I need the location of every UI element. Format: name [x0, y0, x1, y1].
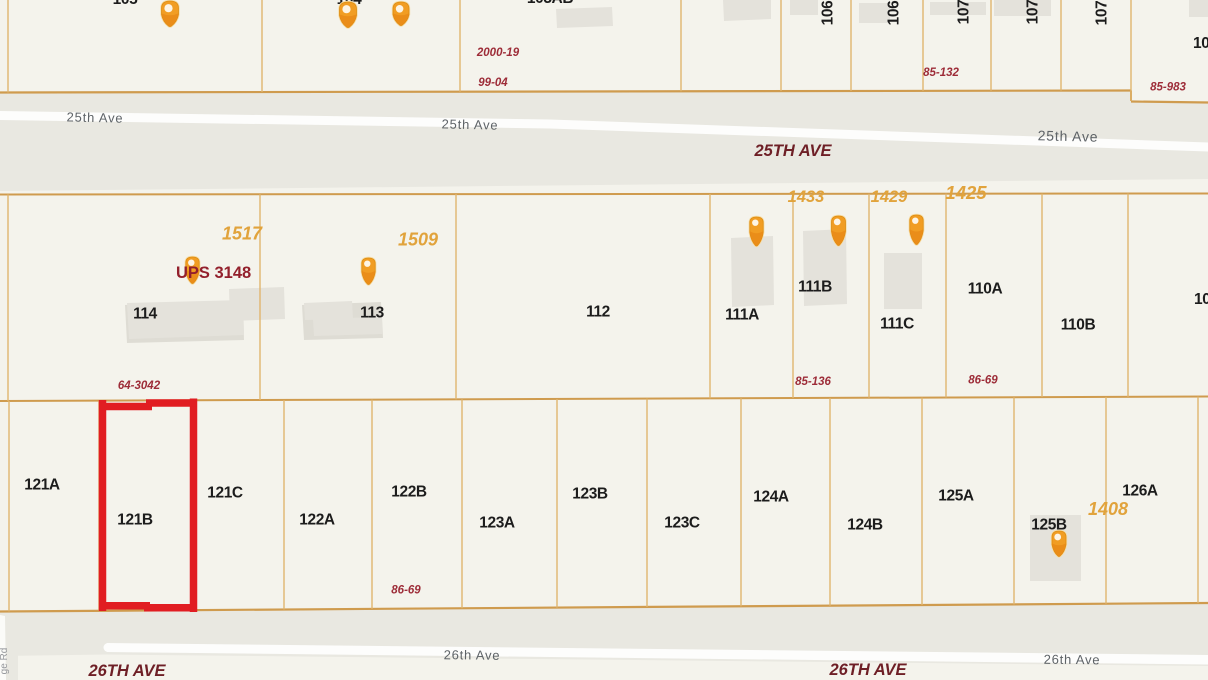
- svg-text:124B: 124B: [847, 517, 883, 534]
- svg-text:25th Ave: 25th Ave: [441, 116, 498, 132]
- svg-text:106: 106: [820, 0, 837, 25]
- svg-text:1509: 1509: [398, 230, 438, 250]
- svg-text:ge Rd: ge Rd: [0, 648, 10, 675]
- svg-text:85-132: 85-132: [923, 67, 959, 79]
- svg-text:1517: 1517: [222, 224, 263, 244]
- svg-text:26TH AVE: 26TH AVE: [828, 661, 907, 679]
- svg-text:UPS 3148: UPS 3148: [176, 264, 251, 282]
- svg-text:113: 113: [360, 305, 385, 322]
- svg-text:123C: 123C: [664, 515, 700, 532]
- svg-text:86-69: 86-69: [391, 585, 421, 597]
- svg-text:86-69: 86-69: [968, 375, 998, 387]
- svg-text:1429: 1429: [871, 188, 909, 206]
- svg-text:114: 114: [133, 306, 158, 323]
- svg-text:1408: 1408: [1088, 499, 1128, 519]
- svg-text:109: 109: [1194, 291, 1208, 308]
- svg-text:106: 106: [886, 0, 903, 25]
- svg-text:107: 107: [1025, 0, 1042, 24]
- svg-text:111B: 111B: [798, 279, 832, 296]
- svg-text:111C: 111C: [880, 316, 914, 333]
- svg-text:121A: 121A: [24, 477, 60, 494]
- svg-text:25TH AVE: 25TH AVE: [753, 142, 832, 160]
- svg-text:122B: 122B: [391, 484, 427, 501]
- svg-text:64-3042: 64-3042: [118, 380, 161, 392]
- svg-text:107: 107: [1094, 1, 1111, 26]
- svg-text:99-04: 99-04: [478, 77, 508, 89]
- svg-text:2000-19: 2000-19: [476, 47, 520, 59]
- svg-text:111A: 111A: [725, 307, 759, 324]
- svg-text:125A: 125A: [938, 488, 974, 505]
- svg-text:25th Ave: 25th Ave: [1038, 127, 1099, 144]
- svg-text:1433: 1433: [788, 188, 825, 206]
- svg-text:26th Ave: 26th Ave: [444, 647, 501, 663]
- svg-text:25th Ave: 25th Ave: [66, 109, 123, 125]
- svg-text:112: 112: [586, 304, 610, 321]
- svg-text:26TH AVE: 26TH AVE: [87, 662, 166, 680]
- svg-text:26th Ave: 26th Ave: [1044, 652, 1101, 668]
- svg-text:121B: 121B: [117, 512, 153, 529]
- svg-text:110B: 110B: [1061, 317, 1096, 334]
- svg-text:1425: 1425: [945, 182, 987, 203]
- svg-text:124A: 124A: [753, 489, 789, 506]
- svg-text:126A: 126A: [1122, 483, 1158, 500]
- svg-text:85-983: 85-983: [1150, 82, 1186, 94]
- svg-text:103AB: 103AB: [527, 0, 573, 7]
- svg-text:123B: 123B: [572, 486, 608, 503]
- svg-text:108: 108: [1193, 35, 1208, 52]
- svg-text:107: 107: [956, 0, 973, 24]
- svg-text:85-136: 85-136: [795, 376, 831, 388]
- svg-text:122A: 122A: [299, 512, 335, 529]
- svg-text:105: 105: [113, 0, 138, 8]
- svg-text:123A: 123A: [479, 515, 515, 532]
- svg-text:110A: 110A: [968, 281, 1003, 298]
- svg-text:121C: 121C: [207, 485, 243, 502]
